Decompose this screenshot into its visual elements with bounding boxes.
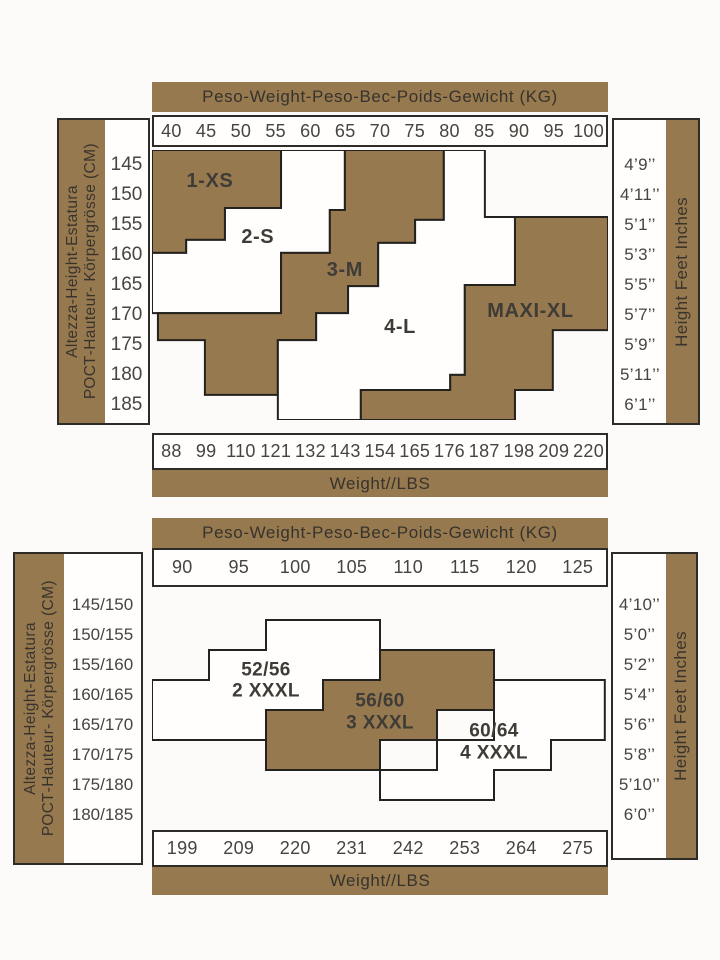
chart1-plot: 1-XS2-S3-M4-LMAXI-XL (152, 150, 608, 420)
height-cm-value: 160 (105, 240, 148, 270)
height-ft-value: 5’11’’ (614, 360, 666, 390)
chart2-height-cm-values: 145/150150/155155/160160/165165/170170/1… (64, 590, 141, 830)
kg-value: 125 (550, 550, 607, 585)
chart1-left-axis-label-line2: РОСТ-Hauteur- Körpergrösse (CM) (82, 143, 100, 399)
chart1-height-cm-column: 145150155160165170175180185 (105, 120, 148, 423)
kg-value: 45 (189, 117, 224, 145)
chart1-left-axis-label-line1: Altezza-Height-Estatura (64, 185, 82, 358)
size-region-label: 3-M (327, 259, 363, 281)
chart2-height-ft-values: 4’10’’5’0’’5’2’’5’4’’5’6’’5’8’’5’10’’6’0… (613, 590, 666, 830)
size-region-label: 60/644 XXXL (460, 721, 528, 764)
chart2-lbs-label: Weight//LBS (330, 871, 431, 891)
size-region-label: 52/562 XXXL (232, 660, 300, 703)
height-cm-value: 165 (105, 270, 148, 300)
height-cm-value: 185 (105, 390, 148, 420)
chart2-kg-axis: 9095100105110115120125 (152, 548, 608, 587)
kg-value: 75 (397, 117, 432, 145)
height-cm-value: 175/180 (64, 770, 141, 800)
height-ft-value: 5’5’’ (614, 270, 666, 300)
height-cm-value: 155 (105, 210, 148, 240)
height-cm-value: 165/170 (64, 710, 141, 740)
chart2-kg-title: Peso-Weight-Peso-Bec-Poids-Gewicht (KG) (202, 523, 558, 543)
chart2-left-axis-label-line1: Altezza-Height-Estatura (22, 622, 40, 795)
chart1-lbs-banner: Weight//LBS (152, 470, 608, 497)
height-cm-value: 160/165 (64, 680, 141, 710)
chart2-height-cm-column: 145/150150/155155/160160/165165/170170/1… (64, 554, 141, 863)
kg-value: 50 (224, 117, 259, 145)
chart1-left-axis-strip: Altezza-Height-Estatura РОСТ-Hauteur- Kö… (59, 120, 105, 423)
height-cm-value: 170 (105, 300, 148, 330)
lbs-value: 242 (380, 832, 437, 865)
lbs-value: 253 (437, 832, 494, 865)
kg-value: 65 (328, 117, 363, 145)
height-ft-value: 4’11’’ (614, 180, 666, 210)
chart2-plot: 52/562 XXXL56/603 XXXL60/644 XXXL (152, 590, 608, 830)
kg-value: 95 (536, 117, 571, 145)
chart2-left-axis-label-line2: РОСТ-Hauteur- Körpergrösse (CM) (40, 580, 58, 836)
chart1-kg-title-banner: Peso-Weight-Peso-Bec-Poids-Gewicht (KG) (152, 82, 608, 112)
height-ft-value: 4’9’’ (614, 150, 666, 180)
kg-value: 40 (154, 117, 189, 145)
height-cm-value: 150 (105, 180, 148, 210)
height-ft-value: 4’10’’ (613, 590, 666, 620)
chart2-left-axis-box: Altezza-Height-Estatura РОСТ-Hauteur- Kö… (13, 552, 143, 865)
chart1-right-axis-label: Height Feet Inches (672, 197, 692, 347)
chart2-right-axis-box: 4’10’’5’0’’5’2’’5’4’’5’6’’5’8’’5’10’’6’0… (611, 552, 698, 860)
size-region-label: 4-L (384, 316, 416, 338)
chart2-lbs-banner: Weight//LBS (152, 867, 608, 895)
size-region-label: 56/603 XXXL (346, 691, 414, 734)
kg-value: 90 (154, 550, 211, 585)
size-region-label: MAXI-XL (487, 299, 573, 321)
height-cm-value: 175 (105, 330, 148, 360)
chart1-height-ft-column: 4’9’’4’11’’5’1’’5’3’’5’5’’5’7’’5’9’’5’11… (614, 120, 666, 423)
height-cm-value: 150/155 (64, 620, 141, 650)
kg-value: 120 (493, 550, 550, 585)
height-ft-value: 5’7’’ (614, 300, 666, 330)
kg-value: 90 (502, 117, 537, 145)
lbs-value: 143 (328, 435, 363, 468)
height-cm-value: 180/185 (64, 800, 141, 830)
kg-value: 110 (380, 550, 437, 585)
lbs-value: 199 (154, 832, 211, 865)
height-cm-value: 180 (105, 360, 148, 390)
kg-value: 115 (437, 550, 494, 585)
height-cm-value: 145 (105, 150, 148, 180)
chart2-right-axis-strip: Height Feet Inches (666, 554, 696, 858)
kg-value: 55 (258, 117, 293, 145)
height-ft-value: 5’1’’ (614, 210, 666, 240)
lbs-value: 275 (550, 832, 607, 865)
height-cm-value: 145/150 (64, 590, 141, 620)
chart1-right-axis-strip: Height Feet Inches (666, 120, 698, 423)
kg-value: 80 (432, 117, 467, 145)
lbs-value: 121 (258, 435, 293, 468)
chart2-right-axis-label: Height Feet Inches (671, 631, 691, 781)
chart2-kg-title-banner: Peso-Weight-Peso-Bec-Poids-Gewicht (KG) (152, 518, 608, 548)
kg-value: 85 (467, 117, 502, 145)
chart2-lbs-axis: 199209220231242253264275 (152, 830, 608, 867)
chart1-height-cm-values: 145150155160165170175180185 (105, 150, 148, 420)
lbs-value: 165 (397, 435, 432, 468)
height-ft-value: 6’0’’ (613, 800, 666, 830)
height-cm-value: 155/160 (64, 650, 141, 680)
size-region-label: 2-S (241, 226, 274, 248)
height-ft-value: 5’10’’ (613, 770, 666, 800)
lbs-value: 176 (432, 435, 467, 468)
lbs-value: 198 (502, 435, 537, 468)
height-ft-value: 6’1’’ (614, 390, 666, 420)
lbs-value: 264 (493, 832, 550, 865)
lbs-value: 110 (224, 435, 259, 468)
size-region-label: 1-XS (186, 170, 233, 192)
lbs-value: 132 (293, 435, 328, 468)
height-ft-value: 5’9’’ (614, 330, 666, 360)
kg-value: 95 (211, 550, 268, 585)
chart1-lbs-axis: 8899110121132143154165176187198209220 (152, 433, 608, 470)
height-ft-value: 5’2’’ (613, 650, 666, 680)
kg-value: 105 (324, 550, 381, 585)
height-ft-value: 5’3’’ (614, 240, 666, 270)
chart1-height-ft-values: 4’9’’4’11’’5’1’’5’3’’5’5’’5’7’’5’9’’5’11… (614, 150, 666, 420)
lbs-value: 220 (571, 435, 606, 468)
chart2-left-axis-strip: Altezza-Height-Estatura РОСТ-Hauteur- Kö… (15, 554, 64, 863)
lbs-value: 154 (363, 435, 398, 468)
height-ft-value: 5’4’’ (613, 680, 666, 710)
size-chart-page: Peso-Weight-Peso-Bec-Poids-Gewicht (KG) … (0, 0, 720, 960)
chart1-right-axis-box: 4’9’’4’11’’5’1’’5’3’’5’5’’5’7’’5’9’’5’11… (612, 118, 700, 425)
lbs-value: 88 (154, 435, 189, 468)
height-ft-value: 5’8’’ (613, 740, 666, 770)
kg-value: 60 (293, 117, 328, 145)
height-ft-value: 5’0’’ (613, 620, 666, 650)
kg-value: 100 (571, 117, 606, 145)
height-cm-value: 170/175 (64, 740, 141, 770)
chart1-kg-axis: 404550556065707580859095100 (152, 115, 608, 147)
lbs-value: 231 (324, 832, 381, 865)
lbs-value: 187 (467, 435, 502, 468)
chart2-height-ft-column: 4’10’’5’0’’5’2’’5’4’’5’6’’5’8’’5’10’’6’0… (613, 554, 666, 858)
lbs-value: 209 (211, 832, 268, 865)
lbs-value: 209 (536, 435, 571, 468)
chart1-left-axis-box: Altezza-Height-Estatura РОСТ-Hauteur- Kö… (57, 118, 150, 425)
chart1-kg-title: Peso-Weight-Peso-Bec-Poids-Gewicht (KG) (202, 87, 558, 107)
lbs-value: 99 (189, 435, 224, 468)
chart1-lbs-label: Weight//LBS (330, 474, 431, 494)
lbs-value: 220 (267, 832, 324, 865)
height-ft-value: 5’6’’ (613, 710, 666, 740)
kg-value: 70 (363, 117, 398, 145)
kg-value: 100 (267, 550, 324, 585)
